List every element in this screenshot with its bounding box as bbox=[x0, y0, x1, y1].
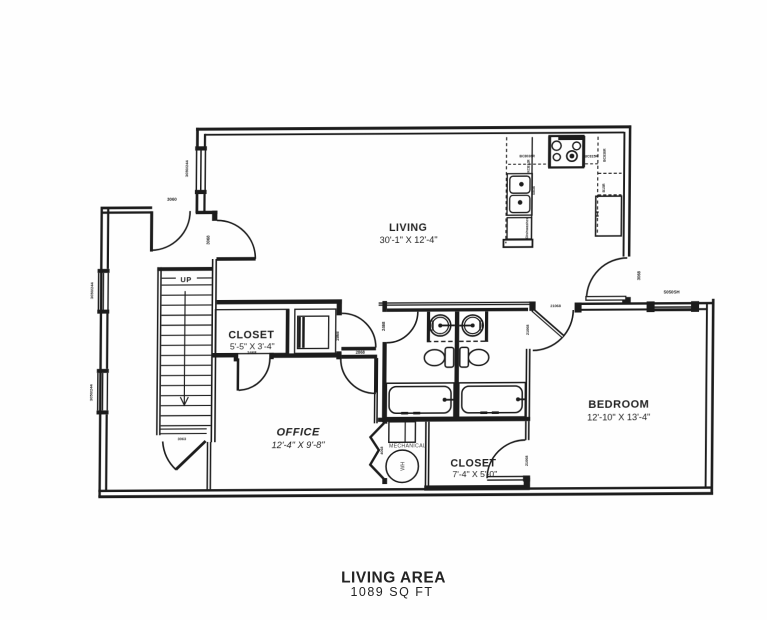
svg-text:BEDROOM: BEDROOM bbox=[588, 399, 649, 411]
svg-text:MECHANICAL: MECHANICAL bbox=[389, 443, 426, 449]
svg-text:21068: 21068 bbox=[526, 325, 530, 336]
svg-text:3068: 3068 bbox=[636, 270, 641, 280]
svg-text:2468: 2468 bbox=[247, 350, 257, 355]
svg-text:12'-10" X 13'-4": 12'-10" X 13'-4" bbox=[587, 412, 650, 422]
svg-text:1089 SQ FT: 1089 SQ FT bbox=[350, 585, 433, 599]
svg-text:BC836R: BC836R bbox=[603, 148, 607, 162]
svg-text:WH: WH bbox=[400, 462, 406, 471]
svg-text:CLOSET: CLOSET bbox=[450, 457, 496, 469]
svg-text:4068: 4068 bbox=[380, 447, 384, 455]
svg-text:3050/244: 3050/244 bbox=[88, 384, 93, 401]
svg-text:30'-1" X 12'-4": 30'-1" X 12'-4" bbox=[380, 235, 438, 245]
svg-text:BC8036R: BC8036R bbox=[520, 154, 536, 158]
svg-text:KCB12R: KCB12R bbox=[527, 159, 531, 173]
svg-text:LIVING: LIVING bbox=[389, 222, 427, 234]
svg-text:7'-4" X 5'-0": 7'-4" X 5'-0" bbox=[452, 469, 497, 479]
svg-text:B15R: B15R bbox=[602, 183, 606, 192]
svg-text:21068: 21068 bbox=[550, 304, 561, 308]
svg-text:3050/244: 3050/244 bbox=[89, 282, 94, 299]
svg-text:2868: 2868 bbox=[335, 331, 340, 341]
svg-text:3063: 3063 bbox=[178, 437, 186, 441]
svg-text:2868: 2868 bbox=[356, 349, 366, 354]
svg-text:5050SH: 5050SH bbox=[664, 289, 680, 294]
svg-text:CLOSET: CLOSET bbox=[228, 329, 274, 341]
svg-text:3060: 3060 bbox=[167, 197, 177, 202]
svg-text:3050/244: 3050/244 bbox=[184, 160, 189, 177]
svg-text:BC815R: BC815R bbox=[584, 154, 598, 158]
svg-text:12'-4" X 9'-8": 12'-4" X 9'-8" bbox=[272, 440, 326, 450]
svg-text:UP: UP bbox=[180, 275, 191, 284]
svg-text:2468: 2468 bbox=[381, 321, 386, 331]
svg-text:21068: 21068 bbox=[525, 456, 529, 467]
svg-text:OFFICE: OFFICE bbox=[276, 427, 320, 439]
svg-text:SB36: SB36 bbox=[532, 186, 536, 195]
svg-text:Dishwasher: Dishwasher bbox=[525, 217, 529, 238]
svg-text:3068: 3068 bbox=[205, 235, 210, 245]
